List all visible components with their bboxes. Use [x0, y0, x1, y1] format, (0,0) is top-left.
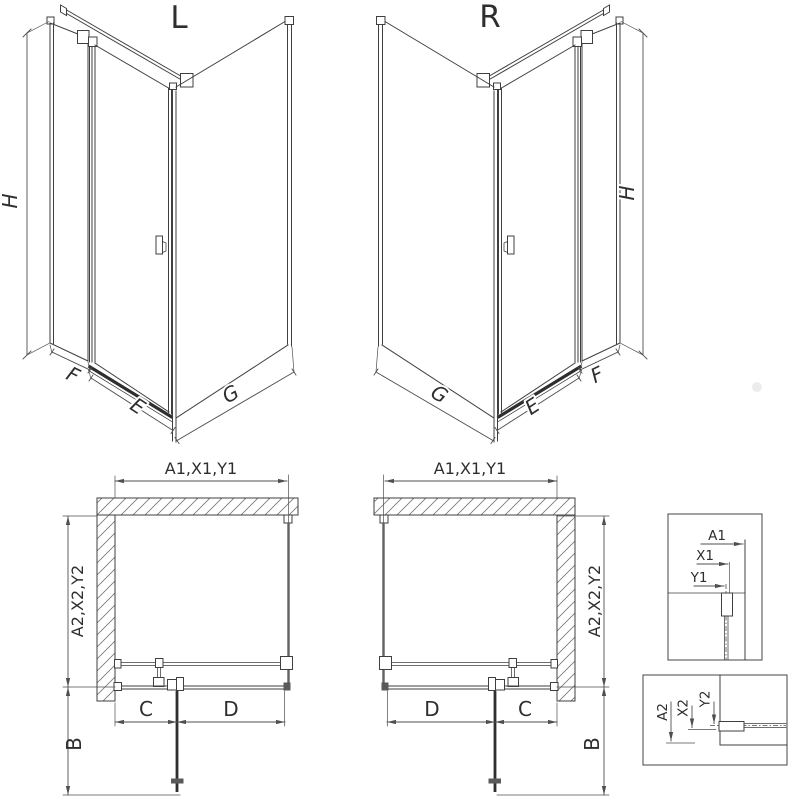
dim-label-d-left: D: [223, 697, 238, 721]
track-left-cap: [382, 683, 389, 691]
bar-link: [158, 668, 161, 678]
bar-link: [512, 668, 515, 678]
enclosure-structure-left: [23, 5, 296, 444]
iso-view-right: R H F E G: [374, 0, 647, 444]
bar-wall-cap: [551, 660, 558, 669]
dim-label-side-panel-left: F: [63, 361, 84, 388]
detail-box-top: A1 X1 Y1: [668, 514, 762, 660]
dim-label-c-right: C: [518, 697, 532, 721]
dim-label-side-panel-right: F: [586, 361, 607, 388]
wall-profile-channel: [719, 722, 744, 732]
dim-label-y2-detail: Y2: [698, 691, 714, 709]
support-bar: [392, 663, 552, 666]
bar-mid-connector: [509, 659, 517, 668]
door-handle: [171, 779, 184, 784]
bar-glass-connector: [380, 657, 392, 670]
wall-profile-channel: [722, 593, 733, 616]
bar-glass-connector: [281, 657, 293, 670]
wall-right-hatched: [557, 515, 575, 701]
door-pivot-block: [496, 680, 505, 691]
dim-label-b-left: B: [62, 737, 86, 751]
bottom-track: [382, 686, 557, 689]
view-title-left: L: [170, 0, 188, 36]
plan-view-right: A1,X1,Y1 A2,X2,Y2 D C B: [374, 459, 609, 795]
dim-label-a2-right: A2,X2,Y2: [585, 565, 604, 637]
bar-mid-connector: [156, 659, 164, 668]
iso-view-left: L H F E G: [0, 0, 296, 444]
plan-view-left: A1,X1,Y1 A2,X2,Y2 C D B: [62, 459, 298, 795]
door-handle: [489, 779, 502, 784]
detail-box-bottom: A2 X2 Y2: [643, 675, 787, 765]
bottom-track: [115, 686, 290, 689]
glass-wall-bracket: [380, 515, 388, 523]
view-title-right: R: [479, 0, 501, 35]
door-pivot-block: [168, 680, 177, 691]
dim-label-b-right: B: [580, 737, 604, 751]
dim-label-height-right: H: [615, 185, 639, 200]
wall-top-hatched: [97, 498, 298, 515]
dim-label-a1-right: A1,X1,Y1: [434, 459, 506, 478]
dim-label-a1-detail: A1: [708, 528, 726, 544]
dim-label-c-left: C: [139, 697, 153, 721]
dim-label-a2-left: A2,X2,Y2: [68, 565, 87, 637]
watermark-dot: [752, 382, 762, 392]
dim-label-d-right: D: [424, 697, 439, 721]
tee-fitting: [508, 678, 519, 687]
door-hinge: [489, 678, 496, 691]
dim-label-x2-detail: X2: [676, 699, 692, 717]
enclosure-structure-right: [374, 5, 647, 444]
bar-wall-cap: [115, 660, 122, 669]
track-left-cap: [114, 683, 122, 691]
glass-wall-bracket: [284, 515, 292, 523]
tee-fitting: [154, 678, 165, 687]
wall-top-hatched: [374, 498, 575, 515]
dim-label-door-right: E: [520, 392, 544, 419]
dim-label-x1-detail: X1: [696, 548, 714, 564]
support-bar: [121, 663, 281, 666]
door-hinge: [177, 678, 184, 691]
dim-label-height-left: H: [0, 193, 22, 208]
track-right-cap: [284, 683, 291, 691]
dim-label-a2-detail: A2: [655, 703, 671, 721]
dim-label-y1-detail: Y1: [690, 570, 708, 586]
wall-left-hatched: [97, 515, 115, 701]
shower-enclosure-diagram: L H F E G R H F E G A1,X1,: [0, 0, 800, 800]
dim-label-a1-left: A1,X1,Y1: [165, 459, 237, 478]
wall-corner-lines: [720, 675, 787, 745]
track-right-cap: [551, 683, 559, 691]
technical-drawing-page: L H F E G R H F E G A1,X1,: [0, 0, 800, 800]
